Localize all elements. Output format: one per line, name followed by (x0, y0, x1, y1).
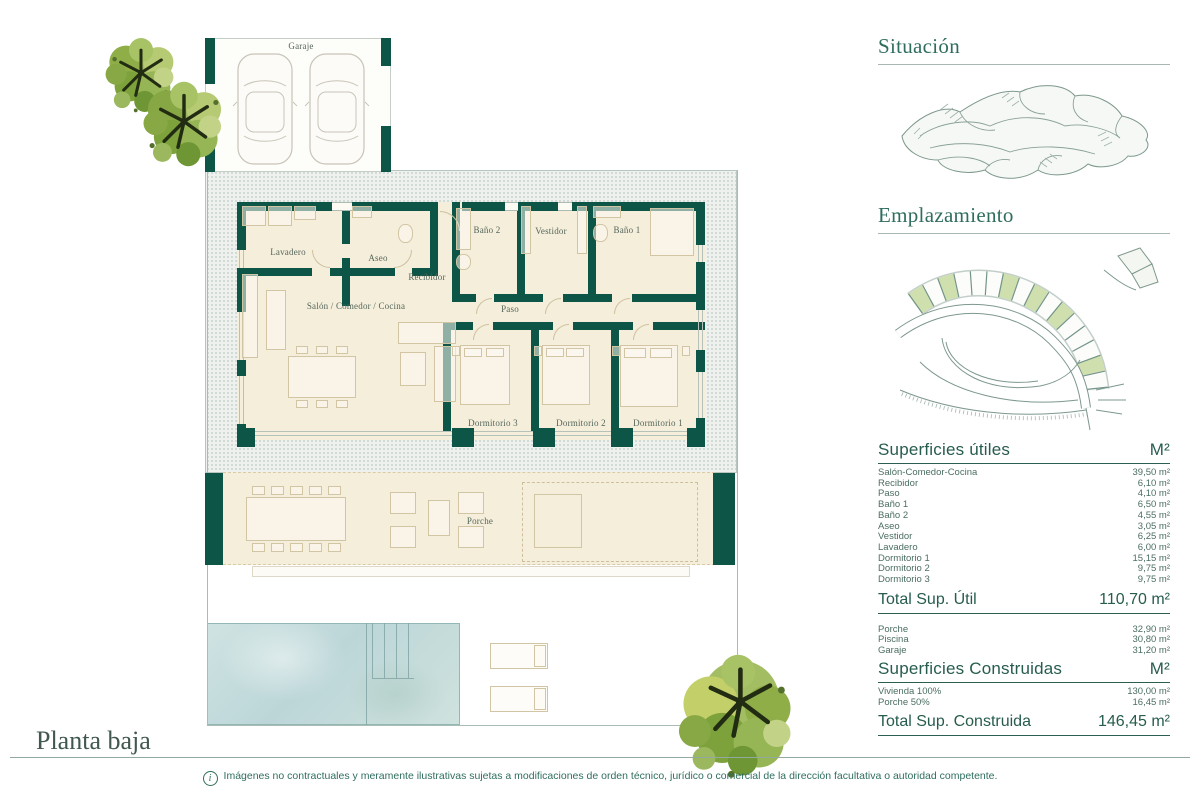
table-row: Baño 2 4,55 m² (878, 511, 1170, 522)
furniture-outline (458, 492, 484, 514)
table-row: Recibidor 6,10 m² (878, 479, 1170, 490)
furniture-outline (352, 206, 372, 218)
row-label: Porche 50% (878, 698, 930, 709)
disclaimer-text: Imágenes no contractuales y meramente il… (224, 770, 998, 782)
wall-segment (696, 202, 705, 245)
total-construida-value: 146,45 m² (1098, 713, 1170, 731)
furniture-outline (534, 645, 546, 667)
plot-boundary-bottom (207, 725, 738, 726)
furniture-outline (266, 290, 286, 350)
table-row: Paso 4,10 m² (878, 489, 1170, 500)
room-label-paso: Paso (501, 304, 519, 314)
swimming-pool (207, 623, 460, 725)
furniture-outline (650, 348, 672, 358)
furniture-outline (650, 208, 694, 256)
furniture-outline (328, 543, 341, 552)
row-label: Baño 2 (878, 511, 908, 522)
room-label-dorm3: Dormitorio 3 (468, 418, 518, 428)
room-label-vestidor: Vestidor (535, 226, 567, 236)
superficies-utiles-header: Superficies útiles M² (878, 440, 1170, 464)
total-util-row: Total Sup. Útil 110,70 m² (878, 588, 1170, 614)
page-title: Planta baja (36, 726, 151, 756)
footer-rule (10, 757, 1190, 758)
furniture-outline (593, 206, 621, 218)
furniture-outline (316, 346, 328, 354)
superficies-construidas-header: Superficies Construidas M² (878, 659, 1170, 683)
wall-segment (687, 428, 705, 447)
room-label-dorm2: Dormitorio 2 (556, 418, 606, 428)
furniture-outline (566, 348, 584, 357)
wall-segment (531, 322, 539, 431)
furniture-outline (458, 526, 484, 548)
garage-cars (233, 50, 373, 168)
wall-segment (573, 322, 633, 330)
glazing-icon (239, 376, 244, 424)
furniture-outline (242, 274, 258, 358)
total-util-value: 110,70 m² (1099, 591, 1170, 609)
furniture-outline (390, 492, 416, 514)
furniture-outline (316, 400, 328, 408)
wall-segment (596, 294, 612, 302)
wall-segment (460, 294, 476, 302)
furniture-outline (309, 543, 322, 552)
furniture-outline (624, 348, 646, 358)
room-label-bano1: Baño 1 (614, 225, 641, 235)
wall-segment (611, 322, 619, 431)
tree-icon (662, 640, 812, 788)
row-label: Vivienda 100% (878, 687, 941, 698)
table-row: Aseo 3,05 m² (878, 522, 1170, 533)
pool-lane-line (366, 623, 367, 725)
furniture-outline (398, 224, 413, 243)
furniture-outline (246, 497, 346, 541)
total-construida-row: Total Sup. Construida 146,45 m² (878, 710, 1170, 736)
table-row: Porche 32,90 m² (878, 625, 1170, 636)
furniture-outline (521, 206, 531, 254)
wall-segment (696, 262, 705, 310)
furniture-outline (452, 346, 460, 356)
room-label-aseo: Aseo (368, 253, 387, 263)
furniture-outline (294, 206, 316, 220)
wall-segment (452, 428, 474, 447)
disclaimer: iImágenes no contractuales y meramente i… (0, 770, 1200, 786)
furniture-outline (390, 526, 416, 548)
room-label-garaje: Garaje (288, 41, 313, 51)
wall-segment (237, 360, 246, 376)
row-value: 31,20 m² (1133, 646, 1171, 657)
room-label-salon: Salón / Comedor / Cocina (307, 301, 405, 311)
window-icon (332, 202, 352, 211)
furniture-outline (296, 400, 308, 408)
furniture-outline (534, 346, 542, 356)
furniture-outline (534, 688, 546, 710)
furniture-outline (464, 348, 482, 357)
superficies-utiles-rows: Salón-Comedor-Cocina 39,50 m² Recibidor … (878, 464, 1170, 588)
plot-boundary-left (207, 170, 208, 726)
wall-segment (430, 202, 438, 268)
pool-step (408, 623, 409, 678)
superficies-construidas-unit: M² (1150, 659, 1170, 679)
furniture-outline (612, 346, 620, 356)
table-row: Baño 1 6,50 m² (878, 500, 1170, 511)
furniture-outline (271, 543, 284, 552)
table-row: Vestidor 6,25 m² (878, 532, 1170, 543)
pool-step (384, 623, 385, 678)
glazing-icon (698, 310, 703, 350)
furniture-outline (268, 206, 292, 226)
emplazamiento-rule (878, 233, 1170, 234)
wall-segment (563, 294, 588, 302)
furniture-outline (577, 206, 587, 254)
tree-icon (128, 68, 240, 180)
glazing-icon (555, 431, 611, 436)
row-label: Garaje (878, 646, 907, 657)
furniture-outline (486, 348, 504, 357)
furniture-outline (336, 346, 348, 354)
room-label-porche: Porche (467, 516, 493, 526)
wall-segment (632, 294, 696, 302)
superficies-construidas-title: Superficies Construidas (878, 659, 1062, 679)
row-value: 4,55 m² (1138, 511, 1170, 522)
wall-segment (696, 350, 705, 372)
room-label-lavadero: Lavadero (270, 247, 306, 257)
furniture-outline (546, 348, 564, 357)
porch-planter (534, 494, 582, 548)
wall-segment (237, 428, 255, 447)
furniture-outline (242, 206, 266, 226)
brochure-page: Garaje Lavadero Aseo Recibidor Salón / C… (0, 0, 1200, 806)
furniture-outline (398, 322, 456, 344)
furniture-outline (309, 486, 322, 495)
glazing-icon (698, 245, 703, 262)
glazing-icon (698, 372, 703, 418)
furniture-outline (428, 500, 450, 536)
emplazamiento-title: Emplazamiento (878, 203, 1170, 228)
superficies-utiles-title: Superficies útiles (878, 440, 1010, 460)
furniture-outline (682, 346, 690, 356)
pool-step (396, 623, 397, 678)
furniture-outline (288, 356, 356, 398)
row-value: 9,75 m² (1138, 575, 1170, 586)
glazing-icon (633, 431, 687, 436)
situacion-map (890, 74, 1160, 196)
situacion-rule (878, 64, 1170, 65)
furniture-outline (456, 254, 471, 270)
furniture-outline (456, 208, 471, 250)
total-construida-label: Total Sup. Construida (878, 713, 1031, 731)
wall-segment (330, 268, 395, 276)
furniture-outline (290, 543, 303, 552)
room-label-recibidor: Recibidor (408, 272, 445, 282)
superficies-construidas-rows: Vivienda 100% 130,00 m² Porche 50% 16,45… (878, 683, 1170, 710)
wall-segment (494, 294, 517, 302)
wall-segment (205, 473, 223, 565)
glazing-icon (239, 250, 244, 268)
glazing-icon (474, 431, 533, 436)
furniture-outline (271, 486, 284, 495)
furniture-outline (290, 486, 303, 495)
table-row: Vivienda 100% 130,00 m² (878, 687, 1170, 698)
wall-segment (713, 473, 735, 565)
room-label-bano2: Baño 2 (474, 225, 501, 235)
situacion-title: Situación (878, 34, 1170, 59)
window-icon (558, 202, 572, 211)
furniture-outline (593, 224, 608, 242)
room-label-dorm1: Dormitorio 1 (633, 418, 683, 428)
emplazamiento-map (890, 242, 1160, 430)
row-value: 130,00 m² (1127, 687, 1170, 698)
table-row: Piscina 30,80 m² (878, 635, 1170, 646)
furniture-outline (400, 352, 426, 386)
table-row: Garaje 31,20 m² (878, 646, 1170, 657)
table-row: Porche 50% 16,45 m² (878, 698, 1170, 709)
row-value: 16,45 m² (1133, 698, 1171, 709)
pool-step (372, 623, 373, 678)
row-label: Dormitorio 3 (878, 575, 930, 586)
wall-segment (381, 126, 391, 172)
info-icon: i (203, 771, 218, 786)
pool-step-edge (372, 678, 414, 679)
furniture-outline (252, 486, 265, 495)
table-row: Salón-Comedor-Cocina 39,50 m² (878, 468, 1170, 479)
table-row: Dormitorio 3 9,75 m² (878, 575, 1170, 586)
window-icon (505, 202, 518, 211)
wall-segment (342, 258, 350, 306)
wall-segment (381, 38, 391, 66)
surfaces-tables: Superficies útiles M² Salón-Comedor-Coci… (878, 440, 1170, 736)
furniture-outline (328, 486, 341, 495)
total-util-label: Total Sup. Útil (878, 591, 977, 609)
superficies-utiles-unit: M² (1150, 440, 1170, 460)
wall-segment (525, 294, 543, 302)
glazing-icon (255, 431, 452, 436)
exterior-rows: Porche 32,90 m² Piscina 30,80 m² Garaje … (878, 621, 1170, 659)
wall-segment (493, 322, 553, 330)
furniture-outline (252, 543, 265, 552)
terrace-edge (252, 566, 690, 577)
furniture-outline (296, 346, 308, 354)
furniture-outline (336, 400, 348, 408)
